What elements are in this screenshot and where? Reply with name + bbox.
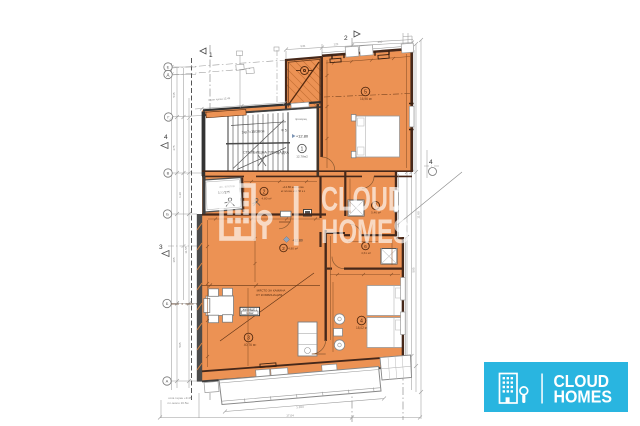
svg-text:Б: Б [166, 212, 169, 217]
svg-text:4,61 м²: 4,61 м² [361, 251, 371, 255]
svg-text:HOMES: HOMES [321, 213, 409, 251]
svg-text:120: 120 [333, 42, 338, 46]
svg-text:275: 275 [172, 145, 176, 150]
svg-text:В: В [167, 171, 170, 176]
svg-text:595: 595 [178, 342, 182, 347]
svg-text:385: 385 [172, 257, 176, 262]
svg-text:HOMES: HOMES [554, 386, 613, 406]
svg-text:4,80 м²: 4,80 м² [288, 247, 298, 251]
svg-text:кота терен +9.45: кота терен +9.45 [168, 396, 192, 400]
svg-text:2: 2 [263, 189, 266, 195]
svg-text:ЖИЛИЩЕ 1: ЖИЛИЩЕ 1 [242, 308, 257, 312]
svg-text:4: 4 [360, 319, 363, 325]
svg-text:545: 545 [300, 44, 305, 48]
svg-text:16,96 м²: 16,96 м² [360, 97, 372, 101]
svg-text:11.55: 11.55 [184, 246, 188, 254]
svg-text:40,76 м²: 40,76 м² [244, 343, 257, 347]
svg-text:1.20: 1.20 [178, 192, 182, 198]
svg-text:595: 595 [412, 267, 416, 272]
svg-text:ет.плоча +12.50 к.з: ет.плоча +12.50 к.з [281, 189, 306, 193]
svg-text:4: 4 [429, 159, 433, 166]
svg-text:545: 545 [172, 92, 176, 97]
svg-text:3: 3 [159, 244, 163, 251]
svg-text:4: 4 [164, 134, 168, 141]
svg-text:пл.около 16.5м: пл.около 16.5м [167, 401, 188, 405]
svg-text:ОТ КОМБИНАЦИЯ: ОТ КОМБИНАЦИЯ [256, 293, 282, 297]
svg-text:1.104: 1.104 [296, 405, 304, 410]
svg-text:Е: Е [167, 65, 170, 70]
svg-text:СТЪЛБИЩНА ПЛОЩАДКА: СТЪЛБИЩНА ПЛОЩАДКА [243, 151, 289, 155]
svg-text:12,78м2: 12,78м2 [296, 155, 308, 159]
svg-text:110м2: 110м2 [246, 312, 254, 315]
svg-text:1: 1 [301, 147, 304, 153]
svg-text:Ф 5: Ф 5 [281, 129, 287, 133]
svg-text:17,04: 17,04 [286, 414, 294, 418]
svg-text:прозорец: прозорец [295, 117, 308, 121]
svg-text:+12.80: +12.80 [296, 133, 309, 138]
svg-text:360: 360 [377, 40, 382, 44]
svg-text:5: 5 [364, 90, 367, 96]
svg-text:4,80 м²: 4,80 м² [261, 197, 271, 201]
svg-text:Б: Б [166, 301, 169, 306]
svg-text:Д: Д [167, 72, 170, 77]
svg-text:11.80: 11.80 [417, 211, 421, 219]
svg-text:2: 2 [344, 35, 348, 42]
svg-text:18,02 м²: 18,02 м² [356, 326, 368, 330]
svg-text:3: 3 [247, 336, 250, 342]
svg-text:2: 2 [282, 246, 285, 252]
svg-text:А: А [166, 379, 169, 384]
svg-text:1: 1 [209, 52, 213, 59]
